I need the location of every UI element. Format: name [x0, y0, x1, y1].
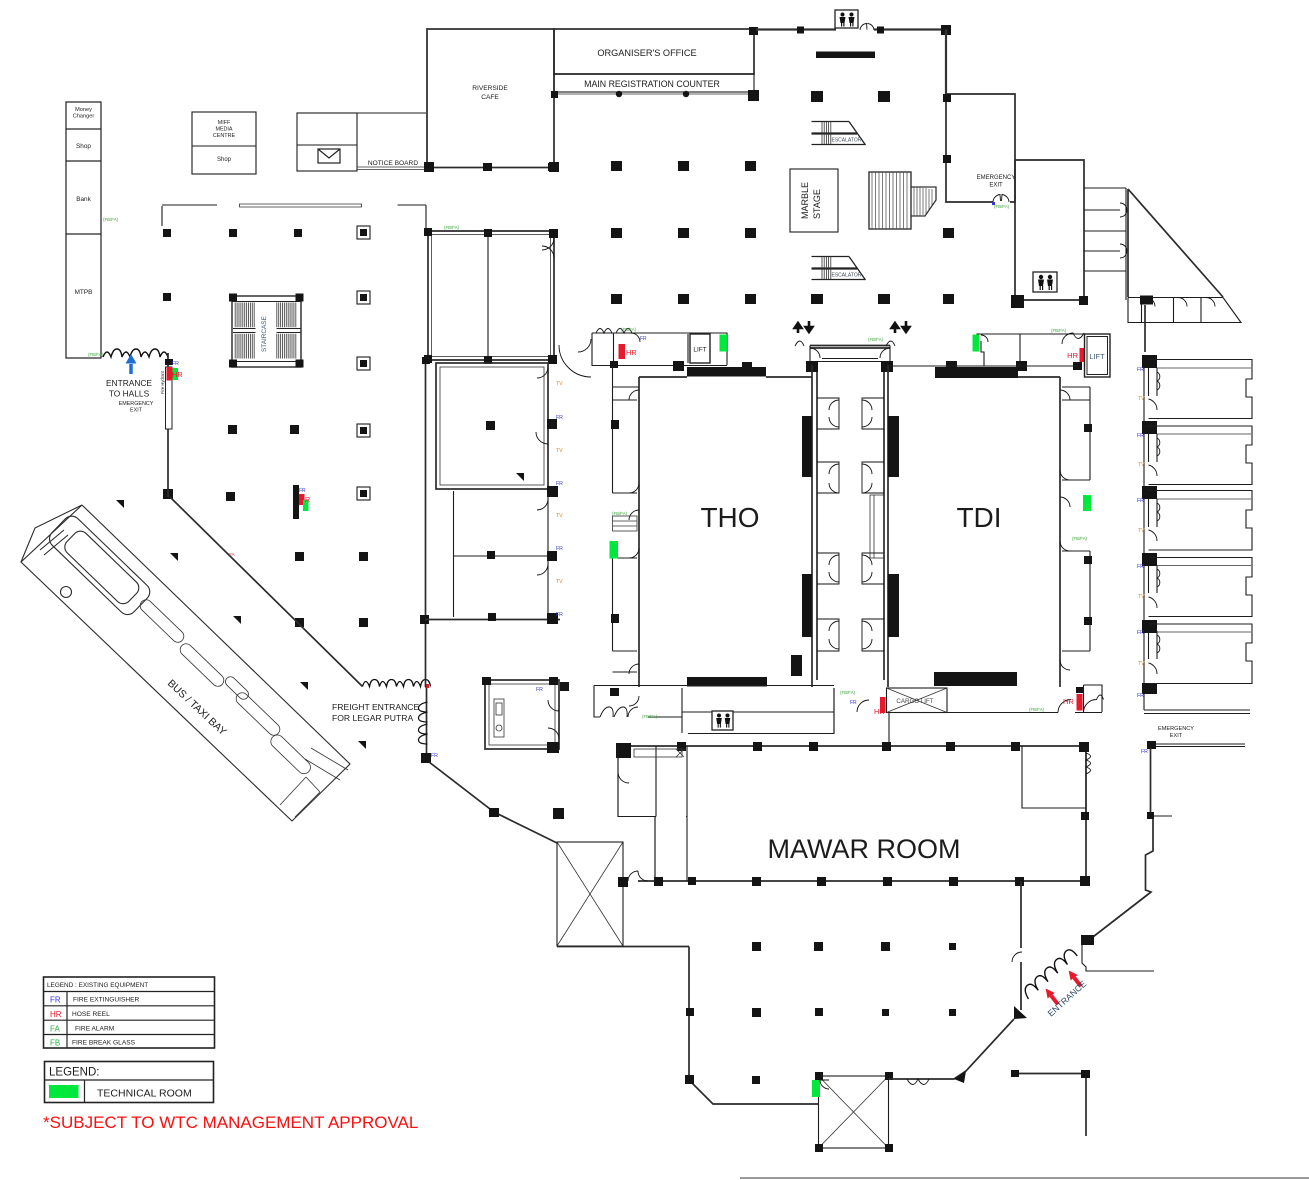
svg-text:FR: FR: [50, 996, 61, 1005]
svg-text:FR: FR: [556, 546, 563, 552]
svg-text:(FB/FA): (FB/FA): [994, 204, 1010, 209]
svg-text:TV: TV: [1138, 528, 1145, 534]
svg-text:Bank: Bank: [76, 196, 91, 203]
svg-text:FR: FR: [172, 361, 179, 367]
svg-text:TECHNICAL ROOM: TECHNICAL ROOM: [97, 1088, 192, 1100]
svg-text:FIRE EXTINGUISHER: FIRE EXTINGUISHER: [73, 997, 140, 1004]
svg-text:FR: FR: [1137, 693, 1144, 699]
svg-text:TV: TV: [1138, 594, 1145, 600]
svg-text:TO HALLS: TO HALLS: [109, 389, 150, 399]
svg-text:(FB/FA): (FB/FA): [1072, 536, 1088, 541]
svg-text:FR: FR: [1137, 630, 1144, 636]
svg-text:(FB/FA): (FB/FA): [621, 327, 637, 332]
svg-text:HR: HR: [1067, 351, 1078, 360]
svg-text:FA: FA: [50, 1024, 60, 1033]
svg-text:TV: TV: [556, 381, 563, 387]
svg-text:FR: FR: [556, 481, 563, 487]
svg-text:TV: TV: [556, 448, 563, 454]
svg-text:FR: FR: [640, 336, 647, 342]
svg-text:FIRE ALARM: FIRE ALARM: [75, 1025, 114, 1032]
svg-text:STAIRCASE: STAIRCASE: [261, 316, 268, 352]
svg-text:HR: HR: [1063, 697, 1074, 706]
svg-text:CENTRE: CENTRE: [213, 133, 236, 139]
svg-text:EXIT: EXIT: [130, 408, 143, 414]
svg-text:EXIT: EXIT: [1170, 733, 1183, 739]
svg-text:Changer: Changer: [73, 114, 95, 120]
svg-text:*SUBJECT TO WTC MANAGEMENT APP: *SUBJECT TO WTC MANAGEMENT APPROVAL: [43, 1113, 418, 1132]
svg-text:TV: TV: [1138, 661, 1145, 667]
svg-text:CARGO LIFT: CARGO LIFT: [896, 698, 933, 705]
svg-text:RIVERSIDE: RIVERSIDE: [472, 85, 508, 92]
svg-text:Fire Hydrant: Fire Hydrant: [160, 370, 165, 394]
svg-text:FR: FR: [536, 687, 543, 693]
svg-text:FR: FR: [1137, 433, 1144, 439]
svg-text:MEDIA: MEDIA: [215, 127, 232, 133]
svg-text:HR: HR: [874, 707, 885, 716]
svg-text:ESCALATOR: ESCALATOR: [832, 273, 862, 279]
svg-text:LEGEND : EXISTING EQUIPMENT: LEGEND : EXISTING EQUIPMENT: [47, 982, 148, 989]
svg-text:(FB/FA): (FB/FA): [1051, 328, 1067, 333]
svg-text:FREIGHT ENTRANCE: FREIGHT ENTRANCE: [332, 702, 419, 712]
svg-text:FR: FR: [431, 753, 438, 759]
svg-text:(FB/FA): (FB/FA): [868, 337, 884, 342]
svg-text:EMERGENCY: EMERGENCY: [119, 401, 154, 407]
svg-text:(FB/FA): (FB/FA): [612, 511, 628, 516]
svg-text:TV: TV: [1138, 462, 1145, 468]
svg-text:MARBLE: MARBLE: [800, 182, 810, 219]
svg-text:(FB/FA): (FB/FA): [103, 217, 119, 222]
svg-text:TDI: TDI: [956, 502, 1001, 533]
svg-text:(FB/FA): (FB/FA): [642, 714, 658, 719]
svg-text:TV: TV: [556, 513, 563, 519]
svg-text:Shop: Shop: [76, 143, 91, 150]
svg-text:HR: HR: [172, 370, 183, 379]
svg-text:HOSE REEL: HOSE REEL: [72, 1011, 110, 1018]
svg-text:NOTICE BOARD: NOTICE BOARD: [368, 160, 418, 167]
svg-text:R: R: [305, 497, 310, 504]
svg-text:FIRE BREAK GLASS: FIRE BREAK GLASS: [72, 1040, 136, 1047]
svg-text:TV: TV: [556, 579, 563, 585]
svg-text:LEGEND:: LEGEND:: [49, 1067, 100, 1079]
svg-text:FR: FR: [556, 612, 563, 618]
svg-text:TV: TV: [1138, 396, 1145, 402]
svg-text:ESCALATOR: ESCALATOR: [832, 138, 862, 144]
svg-text:STAGE: STAGE: [812, 189, 822, 219]
svg-text:(FB/FA): (FB/FA): [1029, 707, 1045, 712]
svg-text:FR: FR: [1141, 749, 1148, 755]
svg-text:FR: FR: [556, 415, 563, 421]
svg-text:LIFT: LIFT: [1089, 352, 1105, 361]
svg-text:EXIT: EXIT: [989, 183, 1003, 189]
svg-text:THO: THO: [700, 502, 759, 533]
svg-text:EMERGENCY: EMERGENCY: [977, 175, 1016, 181]
svg-text:Shop: Shop: [217, 157, 232, 163]
svg-text:HR: HR: [50, 1010, 62, 1019]
svg-text:FR: FR: [1137, 367, 1144, 373]
svg-text:MAIN REGISTRATION COUNTER: MAIN REGISTRATION COUNTER: [584, 79, 720, 89]
svg-text:EMERGENCY: EMERGENCY: [1158, 726, 1194, 732]
svg-text:ORGANISER'S OFFICE: ORGANISER'S OFFICE: [597, 48, 696, 58]
svg-text:HR: HR: [626, 348, 637, 357]
svg-text:(FB/FA): (FB/FA): [88, 352, 104, 357]
svg-text:(FB/FA): (FB/FA): [444, 225, 460, 230]
svg-text:FR: FR: [1137, 498, 1144, 504]
svg-text:(FB/FA): (FB/FA): [840, 690, 856, 695]
svg-text:FB: FB: [50, 1039, 60, 1048]
svg-text:MAWAR ROOM: MAWAR ROOM: [768, 834, 961, 864]
svg-text:MIFF: MIFF: [218, 120, 231, 126]
svg-text:MTPB: MTPB: [75, 289, 93, 296]
svg-text:FR: FR: [299, 488, 306, 494]
svg-text:CAFE: CAFE: [481, 94, 499, 101]
svg-text:FOR LEGAR PUTRA: FOR LEGAR PUTRA: [332, 713, 413, 723]
svg-text:Money: Money: [75, 107, 92, 113]
svg-text:LIFT: LIFT: [693, 347, 706, 354]
svg-text:FR: FR: [1137, 564, 1144, 570]
svg-text:FA: FA: [229, 552, 236, 557]
svg-text:ENTRANCE: ENTRANCE: [106, 378, 152, 388]
svg-text:FR: FR: [850, 700, 857, 706]
